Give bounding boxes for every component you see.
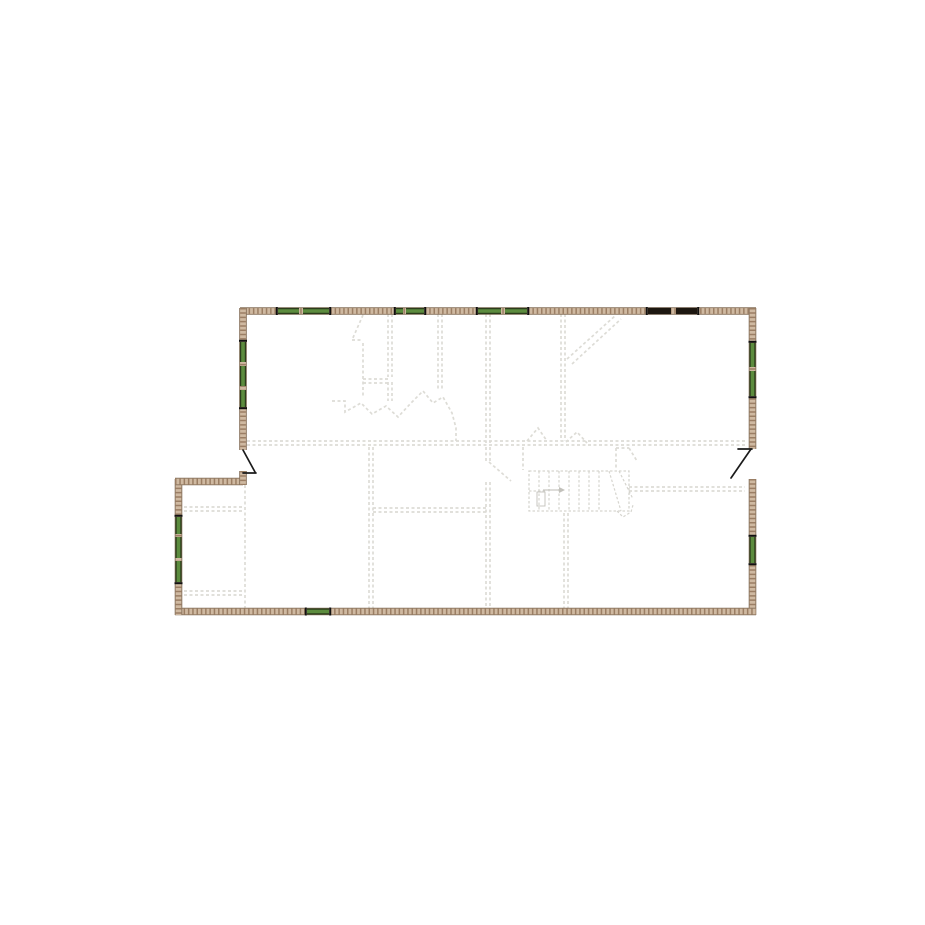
doors — [243, 449, 752, 478]
windows — [179, 311, 753, 612]
winder-corner — [629, 448, 637, 461]
door-swing-hall-left — [527, 428, 547, 441]
door-left — [243, 450, 256, 473]
door-swing-upper-left — [352, 315, 363, 340]
staircase — [529, 471, 633, 517]
door-swing-bedroom — [489, 462, 511, 481]
floor-plan-canvas — [0, 0, 925, 925]
outer-walls — [175, 308, 756, 615]
attic-line-b — [572, 319, 621, 364]
stairwell-outline — [332, 391, 456, 441]
interior-walls — [184, 314, 745, 610]
door-right — [731, 449, 752, 478]
attic-line-a — [567, 315, 616, 359]
stair-direction-arrow — [537, 487, 565, 506]
floor-plan-viewport — [0, 0, 925, 925]
